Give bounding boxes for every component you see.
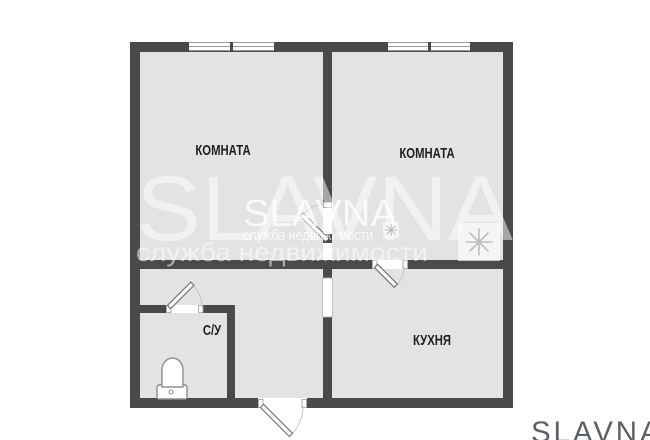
floor-plan-image: КОМНАТА КОМНАТА КУХНЯ С/У SLAVNA служба …	[0, 0, 650, 440]
watermark: SLAVNA служба недвижимости SLAVNA служба…	[136, 158, 514, 267]
watermark-tagline-small: служба недвижимости	[243, 227, 373, 244]
room-label-left: КОМНАТА	[195, 142, 251, 159]
door-leaf	[260, 404, 292, 436]
room-label-bathroom: С/У	[203, 322, 222, 339]
passage-hall-kitchen	[323, 278, 333, 317]
door-arc	[291, 406, 303, 435]
brand-logo: SLAVNA	[531, 416, 650, 440]
snowflake-icon	[458, 223, 500, 261]
wall-bathroom-top-left	[140, 305, 166, 313]
wall-hall-kitchen-top	[323, 269, 332, 278]
window-left	[186, 42, 277, 52]
door-entrance	[260, 404, 303, 436]
wall-bathroom-right	[227, 313, 235, 398]
floor-plan-svg: КОМНАТА КОМНАТА КУХНЯ С/У SLAVNA служба …	[0, 0, 650, 440]
window-right	[385, 42, 473, 52]
snowflake-icon	[383, 222, 399, 238]
wall-hall-kitchen-bottom	[323, 317, 332, 398]
room-label-kitchen: КУХНЯ	[413, 332, 451, 349]
wall-bathroom-top-right	[203, 305, 235, 313]
